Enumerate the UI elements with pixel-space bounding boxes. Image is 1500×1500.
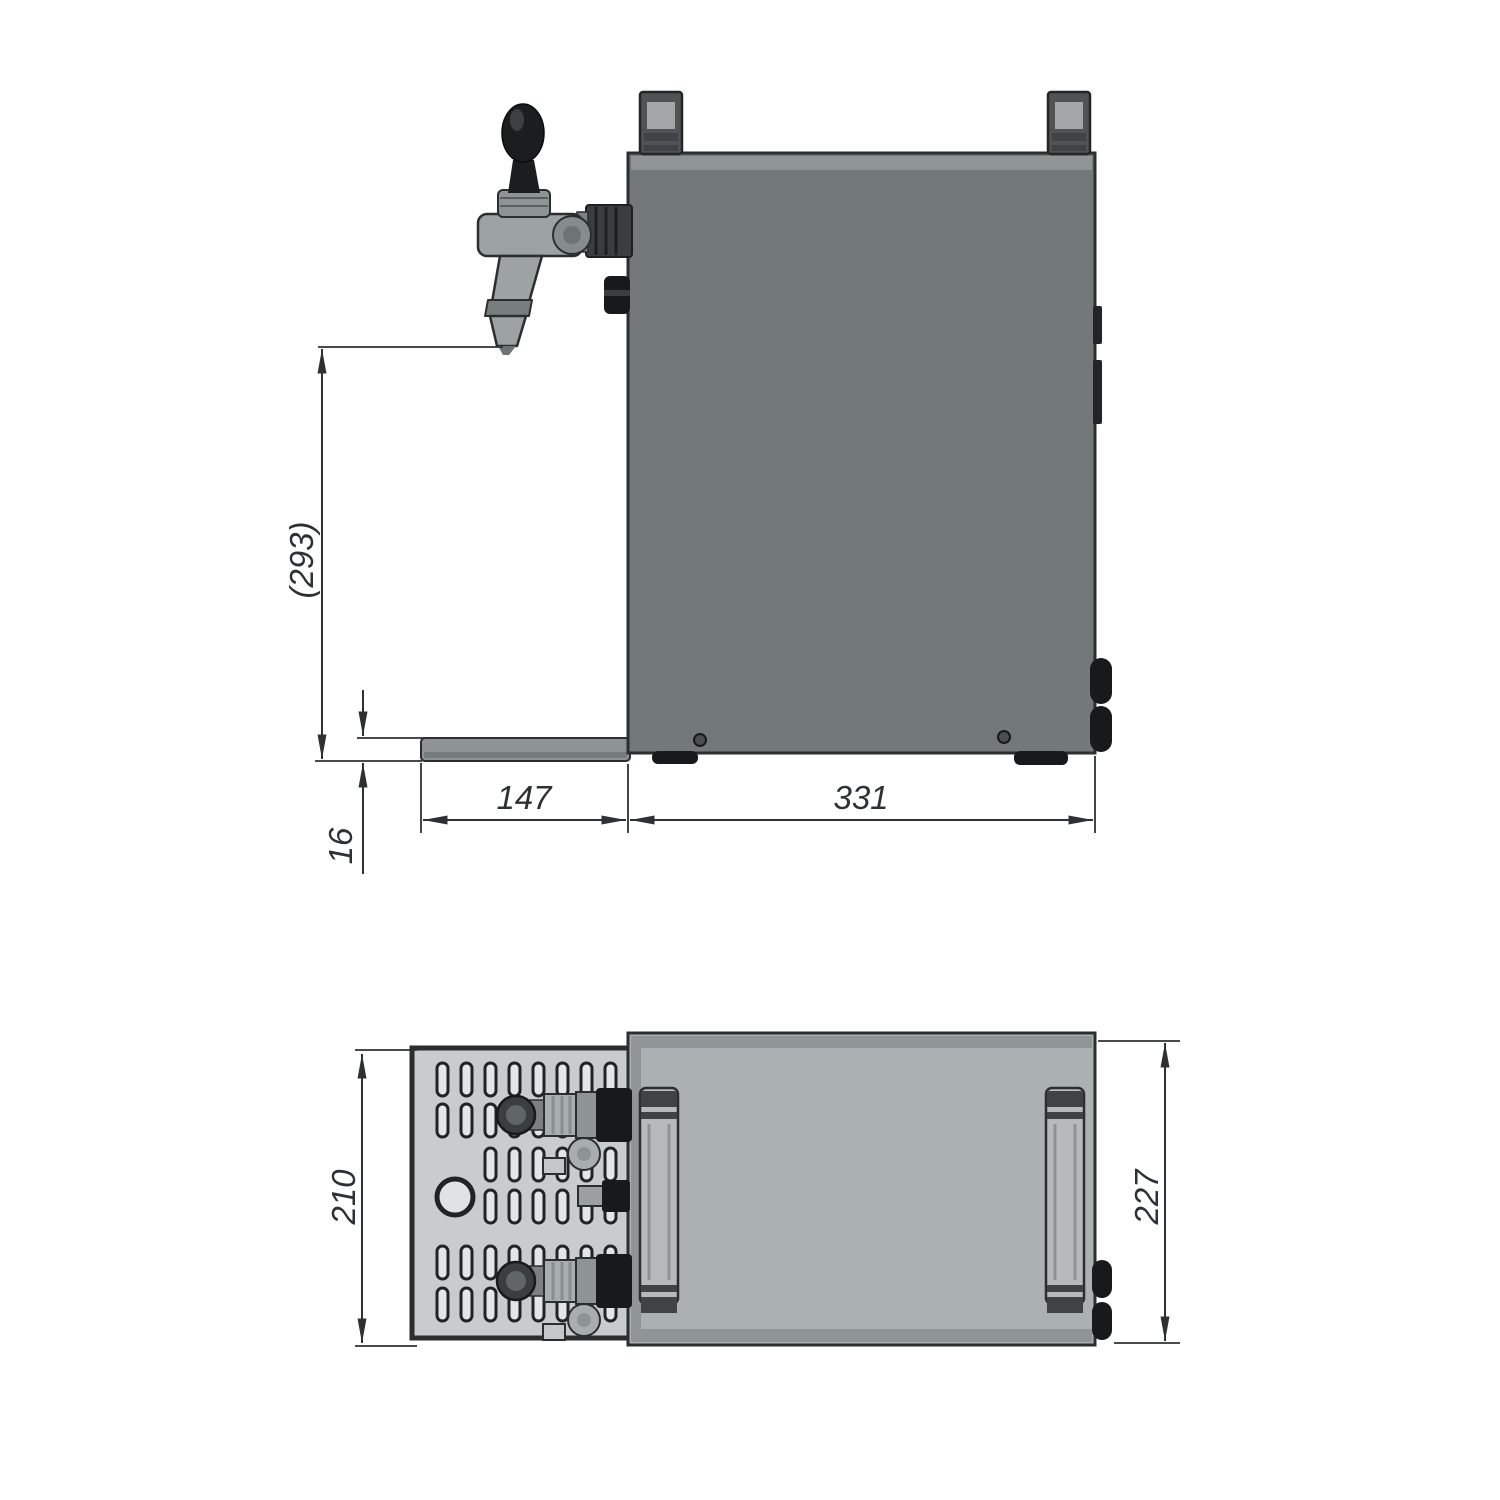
dimension-tray-depth: 147: [421, 763, 628, 833]
top-view: 210 227: [325, 1033, 1180, 1346]
tap-handle-stem: [508, 160, 540, 193]
tap-handle-ball: [502, 104, 544, 162]
label-body-width: 227: [1128, 1168, 1165, 1226]
grille-slot: [557, 1063, 568, 1096]
dispenser-body-top: [628, 1033, 1095, 1345]
rear-knob-lower: [1090, 706, 1112, 752]
grille-slot: [485, 1063, 496, 1096]
grille-slot: [437, 1104, 448, 1137]
technical-drawing-canvas: (293) 16 147 331: [0, 0, 1500, 1500]
grille-slot: [461, 1063, 472, 1096]
lid-front-bevel: [631, 1036, 1092, 1048]
grille-slot: [485, 1190, 496, 1223]
label-tray-thickness: 16: [322, 827, 359, 864]
faucet-spout: [485, 256, 542, 355]
dimension-body-width: 227: [1098, 1041, 1180, 1343]
faucet-shank: [586, 205, 632, 257]
drip-tray-shadow: [424, 752, 627, 758]
grille-slot: [437, 1246, 448, 1279]
faucet-boss-center: [563, 226, 581, 244]
dispenser-body-side: [628, 153, 1095, 753]
tap-faucet: [478, 104, 632, 355]
carry-handle-left-side: [640, 92, 682, 154]
label-tray-width: 210: [325, 1169, 362, 1226]
foot-left: [652, 751, 698, 764]
rear-knob-lower-top: [1092, 1302, 1112, 1340]
body-top-bevel: [631, 156, 1092, 170]
rear-tab-lower: [1093, 360, 1102, 424]
grille-slot: [485, 1288, 496, 1321]
dispenser-dimension-drawing: (293) 16 147 331: [0, 0, 1500, 1500]
carry-handle-left-top: [640, 1088, 678, 1313]
grille-slot: [509, 1190, 520, 1223]
screw-left: [694, 734, 706, 746]
rear-tab-upper: [1093, 306, 1102, 344]
grille-slot: [485, 1148, 496, 1181]
rear-knob-upper: [1090, 658, 1112, 704]
grille-slot: [461, 1246, 472, 1279]
drip-tray-side: [421, 738, 630, 761]
grille-slot: [605, 1148, 616, 1181]
faucet-collar: [498, 190, 550, 217]
dimension-tray-thickness: 16: [322, 690, 426, 874]
side-view: (293) 16 147 331: [283, 92, 1112, 874]
rear-knob-upper-top: [1092, 1260, 1112, 1298]
grille-slot: [485, 1246, 496, 1279]
grille-slot: [485, 1104, 496, 1137]
label-spout-height: (293): [283, 521, 320, 598]
foot-right: [1014, 751, 1068, 765]
carry-handle-right-side: [1048, 92, 1090, 154]
grille-slot: [437, 1063, 448, 1096]
grille-slot: [533, 1190, 544, 1223]
lid-rear-bevel: [631, 1329, 1092, 1342]
tray-drain-hole: [437, 1179, 473, 1215]
tap-handle-highlight: [510, 109, 524, 131]
dimension-body-depth: 331: [630, 756, 1095, 833]
grille-slot: [533, 1063, 544, 1096]
grille-slot: [509, 1148, 520, 1181]
dimension-spout-height: (293): [283, 347, 503, 761]
grille-slot: [437, 1288, 448, 1321]
grille-slot: [461, 1288, 472, 1321]
carry-handle-right-top: [1046, 1088, 1084, 1313]
side-knob-stripe: [604, 290, 630, 296]
label-tray-depth: 147: [496, 779, 553, 816]
screw-right: [998, 731, 1010, 743]
grille-slot: [509, 1063, 520, 1096]
label-body-depth: 331: [833, 779, 888, 816]
dimension-tray-width: 210: [325, 1050, 417, 1346]
grille-slot: [557, 1190, 568, 1223]
grille-slot: [461, 1104, 472, 1137]
